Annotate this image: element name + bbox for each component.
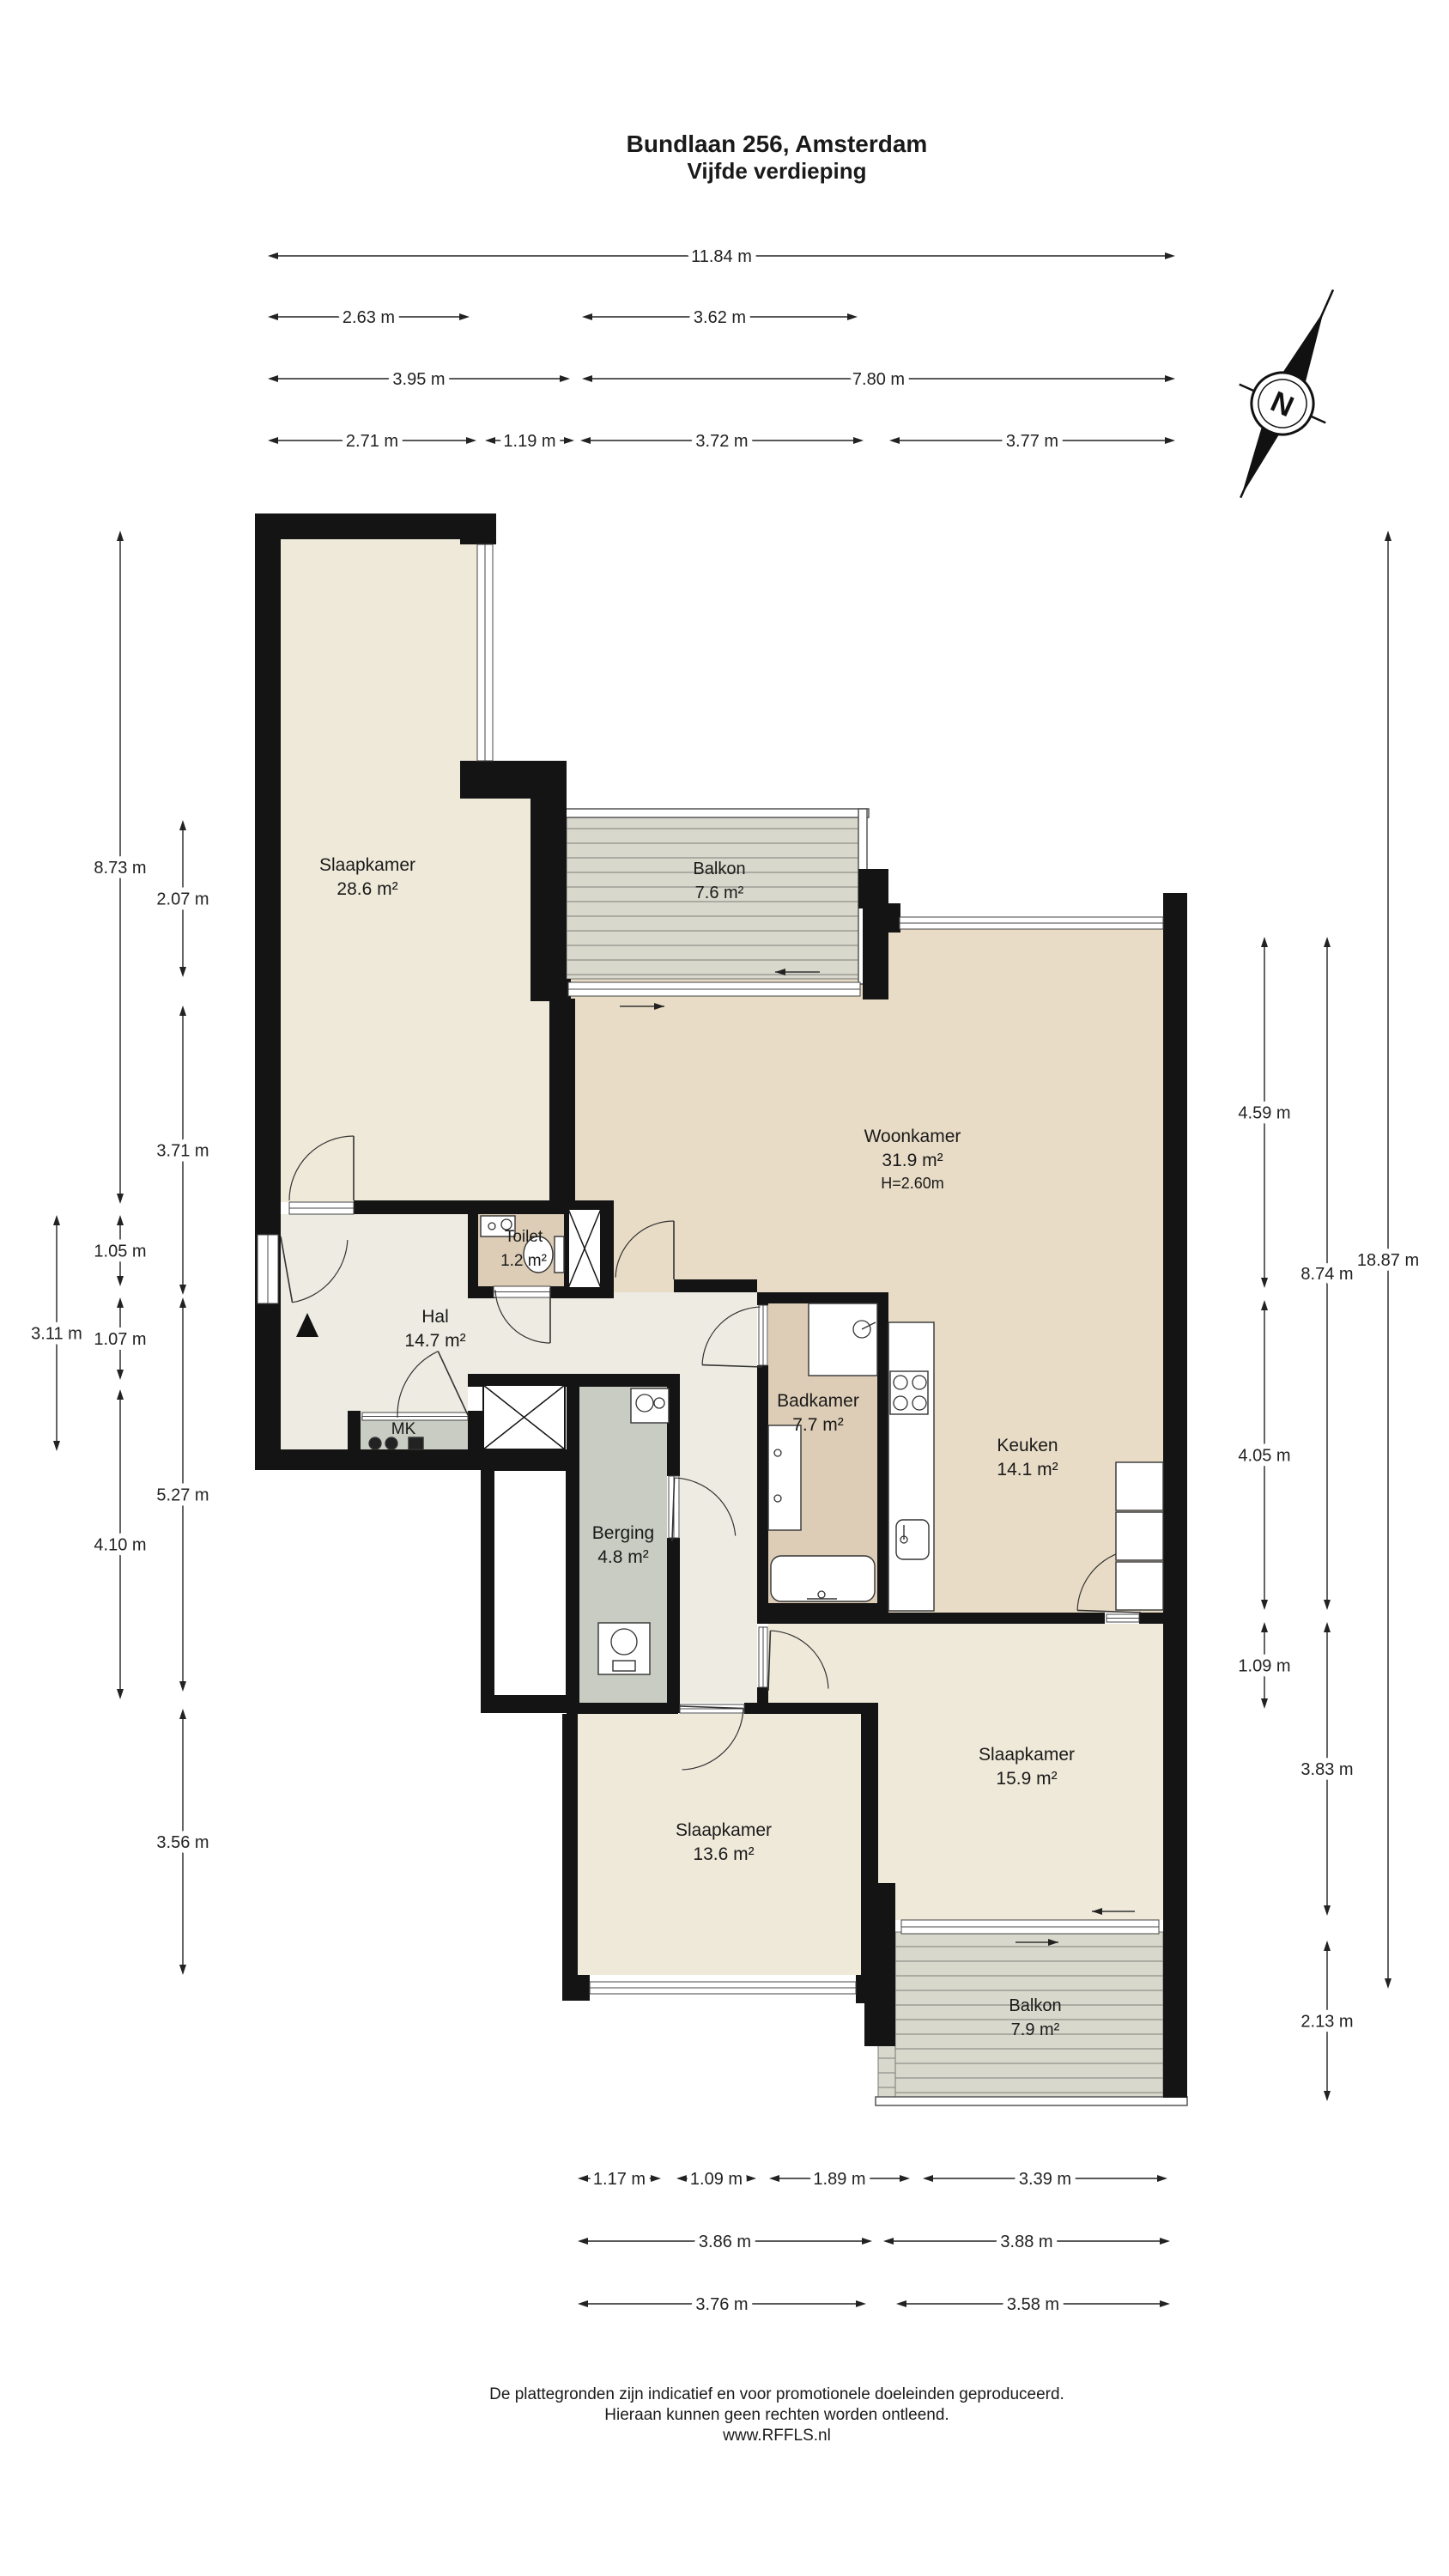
dimension-label: 3.71 m (156, 1142, 209, 1161)
wall (863, 908, 888, 999)
dimension-arrowhead (578, 2238, 588, 2245)
room-slaapkamer-3 (878, 1703, 1163, 1920)
fixture (818, 1591, 825, 1598)
fixture (555, 1236, 564, 1273)
dimension-arrowhead (117, 1389, 124, 1400)
dimension-label: 2.63 m (343, 308, 395, 327)
dimension-label: 3.39 m (1019, 2170, 1071, 2189)
dimension-arrowhead (268, 252, 278, 259)
room-name: Slaapkamer (676, 1820, 772, 1840)
dimension-label: 3.77 m (1006, 432, 1058, 451)
dimension-arrowhead (117, 1215, 124, 1225)
dimension-label: 2.71 m (346, 432, 398, 451)
wall (481, 1470, 494, 1709)
room-area: 7.9 m² (1011, 2020, 1060, 2039)
dimension-label: 3.83 m (1300, 1760, 1353, 1779)
dimension-arrowhead (564, 437, 574, 444)
fixture (1116, 1562, 1163, 1610)
dimension-arrowhead (923, 2175, 933, 2182)
dimension-arrowhead (1324, 1905, 1331, 1916)
dimension-arrowhead (117, 1194, 124, 1204)
fixture (912, 1396, 926, 1410)
dimension-arrowhead (485, 437, 495, 444)
wall (757, 1687, 768, 1704)
balcony-railing (876, 2097, 1187, 2105)
dimension-label: 1.17 m (593, 2170, 646, 2189)
dimension-arrowhead (582, 375, 592, 382)
room-slaapkamer-3 (768, 1624, 1163, 1703)
wall (255, 539, 281, 1470)
dimension-arrowhead (179, 820, 186, 830)
dimension-arrowhead (651, 2175, 661, 2182)
dimension-label: 1.89 m (813, 2170, 865, 2189)
wall (255, 1449, 500, 1470)
wall (348, 1411, 361, 1451)
dimension-label: 3.58 m (1007, 2295, 1059, 2314)
dimension-arrowhead (1165, 375, 1175, 382)
room-area: 14.1 m² (997, 1460, 1058, 1479)
dimension-arrowhead (769, 2175, 779, 2182)
dimension-label: 1.09 m (690, 2170, 743, 2189)
dimension-arrowhead (853, 437, 864, 444)
wall (744, 1703, 861, 1714)
room-height: H=2.60m (881, 1175, 944, 1192)
fixture (774, 1449, 781, 1456)
dimension-arrowhead (1385, 1978, 1391, 1989)
dimension-arrowhead (466, 437, 476, 444)
wall (1163, 893, 1187, 2098)
dimension-arrowhead (117, 1370, 124, 1380)
dimension-arrowhead (1324, 1941, 1331, 1951)
room-name: Balkon (693, 860, 745, 878)
dimension-arrowhead (862, 2238, 872, 2245)
dimension-arrowhead (1261, 1278, 1268, 1288)
dimension-arrowhead (1165, 437, 1175, 444)
balcony-railing (558, 809, 869, 817)
dimension-arrowhead (53, 1441, 60, 1451)
wall (757, 1603, 888, 1624)
dimension-arrowhead (856, 2300, 866, 2307)
dimension-arrowhead (459, 313, 470, 320)
dimension-arrowhead (582, 313, 592, 320)
dimension-arrowhead (883, 2238, 894, 2245)
room-area: 1.2 m² (500, 1252, 547, 1270)
room-name: MK (391, 1420, 416, 1438)
dimension-arrowhead (560, 375, 570, 382)
fixture (613, 1661, 635, 1671)
fixture (894, 1376, 907, 1389)
wall (567, 1703, 678, 1714)
dimension-arrowhead (1261, 937, 1268, 947)
wall (468, 1286, 495, 1298)
dimension-label: 4.05 m (1238, 1447, 1290, 1466)
dimension-arrowhead (268, 437, 278, 444)
room-name: Toilet (505, 1228, 543, 1246)
wall (562, 1714, 578, 1977)
wall (530, 799, 567, 999)
dimension-arrowhead (578, 2300, 588, 2307)
room-area: 15.9 m² (996, 1769, 1057, 1789)
dimension-label: 1.07 m (94, 1330, 146, 1349)
room-area: 13.6 m² (693, 1844, 754, 1864)
fixture (809, 1303, 877, 1376)
fixture (1116, 1462, 1163, 1510)
dimension-arrowhead (117, 531, 124, 541)
dimension-label: 3.86 m (699, 2233, 751, 2251)
wall (877, 1292, 888, 1614)
dimension-label: 3.88 m (1000, 2233, 1052, 2251)
dimension-arrowhead (1165, 252, 1175, 259)
fixture (774, 1495, 781, 1502)
dimension-label: 4.59 m (1238, 1104, 1290, 1123)
wall (888, 1613, 1105, 1624)
dimension-arrowhead (1324, 2091, 1331, 2101)
dimension-label: 11.84 m (691, 247, 752, 266)
dimension-arrowhead (1385, 531, 1391, 541)
room-area: 7.6 m² (695, 884, 744, 902)
wall (562, 1975, 590, 2001)
room-area: 14.7 m² (404, 1331, 465, 1351)
dimension-arrowhead (1261, 1300, 1268, 1310)
dimension-arrowhead (117, 1689, 124, 1699)
disclaimer-line-1: De plattegronden zijn indicatief en voor… (489, 2385, 1064, 2404)
dimension-arrowhead (889, 437, 900, 444)
dimension-arrowhead (1324, 1600, 1331, 1610)
disclaimer-line-2: Hieraan kunnen geen rechten worden ontle… (604, 2406, 949, 2425)
fixture (611, 1629, 637, 1655)
room-name: Balkon (1009, 1996, 1061, 2015)
dimension-label: 5.27 m (156, 1486, 209, 1505)
dimension-arrowhead (578, 2175, 588, 2182)
dimension-label: 4.10 m (94, 1536, 146, 1555)
room-name: Slaapkamer (979, 1745, 1075, 1765)
wall (549, 999, 575, 1212)
wall (1139, 1613, 1163, 1624)
wall (481, 1696, 579, 1713)
dimension-arrowhead (117, 1297, 124, 1308)
fixture (636, 1394, 653, 1412)
dimension-arrowhead (179, 1965, 186, 1975)
balcony-deck-balkon-2 (878, 2044, 895, 2097)
dimension-label: 3.76 m (695, 2295, 748, 2314)
fixture (894, 1396, 907, 1410)
wall (888, 903, 900, 933)
fixture (488, 1223, 495, 1230)
dimension-label: 8.74 m (1300, 1265, 1353, 1284)
dimension-arrowhead (847, 313, 858, 320)
wall (354, 1200, 583, 1214)
dimension-label: 18.87 m (1357, 1251, 1419, 1270)
room-name: Slaapkamer (319, 855, 415, 875)
room-area: 31.9 m² (882, 1151, 943, 1170)
dimension-label: 3.62 m (694, 308, 746, 327)
room-hal (468, 1292, 757, 1374)
fixture (768, 1425, 801, 1530)
dimension-arrowhead (896, 2300, 906, 2307)
dimension-label: 1.19 m (503, 432, 555, 451)
dimension-arrowhead (179, 1681, 186, 1692)
dimension-arrowhead (179, 1005, 186, 1016)
dimension-arrowhead (268, 313, 278, 320)
dimension-arrowhead (268, 375, 278, 382)
fixture (912, 1376, 926, 1389)
dimension-label: 7.80 m (852, 370, 905, 389)
dimension-arrowhead (53, 1215, 60, 1225)
room-name: Badkamer (777, 1391, 859, 1411)
dimension-arrowhead (676, 2175, 687, 2182)
wall (674, 1279, 757, 1292)
disclaimer-url: www.RFFLS.nl (723, 2427, 831, 2445)
wall (468, 1212, 478, 1288)
dimension-label: 3.72 m (695, 432, 748, 451)
dimension-arrowhead (1160, 2238, 1170, 2245)
dimension-label: 3.95 m (392, 370, 445, 389)
dimension-arrowhead (1261, 1600, 1268, 1610)
dimension-label: 2.07 m (156, 890, 209, 909)
wall (481, 1449, 567, 1470)
dimension-label: 3.56 m (156, 1833, 209, 1852)
wall (601, 1279, 614, 1292)
fixture (888, 1322, 934, 1611)
fixture (385, 1437, 397, 1449)
dimension-arrowhead (1261, 1622, 1268, 1632)
wall (255, 513, 481, 539)
dimension-arrowhead (117, 1276, 124, 1286)
fixture (654, 1398, 664, 1408)
fixture (369, 1437, 381, 1449)
room-area: 28.6 m² (336, 879, 397, 899)
dimension-label: 1.05 m (94, 1242, 146, 1261)
dimension-arrowhead (1157, 2175, 1167, 2182)
wall (460, 761, 567, 799)
wall (667, 1538, 680, 1713)
shaft (494, 1470, 567, 1696)
room-name: Hal (421, 1307, 449, 1327)
room-name: Keuken (997, 1436, 1058, 1455)
compass-icon: N (1197, 270, 1376, 517)
dimension-arrowhead (1324, 1622, 1331, 1632)
dimension-arrowhead (179, 967, 186, 977)
room-name: Berging (592, 1523, 654, 1543)
dimension-label: 1.09 m (1238, 1657, 1290, 1676)
fixture (409, 1437, 423, 1449)
wall (858, 869, 888, 908)
dimension-label: 8.73 m (94, 859, 146, 878)
wall (757, 1292, 888, 1303)
room-area: 4.8 m² (597, 1547, 649, 1567)
room-name: Woonkamer (864, 1127, 961, 1146)
dimension-arrowhead (580, 437, 591, 444)
dimension-label: 3.11 m (31, 1325, 82, 1344)
room-hal (680, 1374, 757, 1703)
dimension-arrowhead (179, 1709, 186, 1719)
dimension-arrowhead (746, 2175, 756, 2182)
dimension-arrowhead (179, 1285, 186, 1295)
wall (530, 979, 571, 1001)
dimension-arrowhead (179, 1297, 186, 1308)
floorplan-svg: Woonkamer31.9 m²H=2.60mKeuken14.1 m²Slaa… (0, 0, 1449, 2576)
wall (757, 1365, 768, 1605)
dimension-arrowhead (900, 2175, 910, 2182)
wall (567, 1387, 579, 1713)
wall (460, 513, 496, 544)
dimension-arrowhead (1261, 1698, 1268, 1709)
wall (864, 1883, 895, 2046)
dimension-label: 2.13 m (1300, 2013, 1353, 2032)
room-area: 7.7 m² (792, 1415, 844, 1435)
fixture (1116, 1512, 1163, 1560)
floorplan-page: Bundlaan 256, Amsterdam Vijfde verdiepin… (0, 0, 1449, 2576)
dimension-arrowhead (1160, 2300, 1170, 2307)
dimension-arrowhead (1324, 937, 1331, 947)
